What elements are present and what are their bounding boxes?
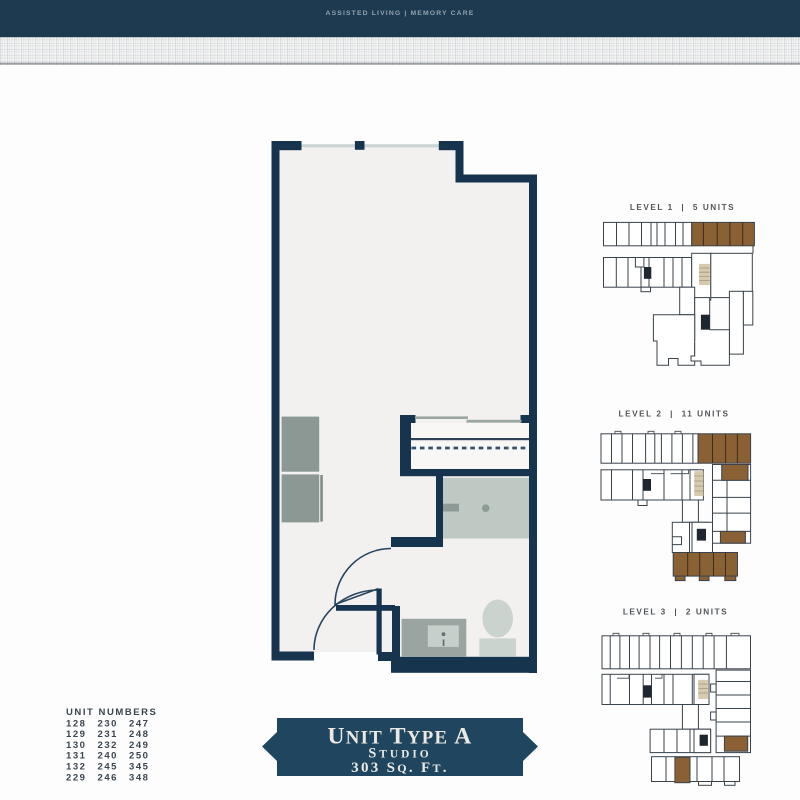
svg-text:230: 230 [98,718,119,729]
svg-text:229: 229 [66,772,87,783]
svg-text:132: 132 [66,762,87,773]
svg-text:ASSISTED LIVING | MEMORY CARE: ASSISTED LIVING | MEMORY CARE [326,10,475,17]
svg-text:130: 130 [66,740,87,751]
svg-text:303 SQ. FT.: 303 SQ. FT. [351,760,449,776]
svg-text:LEVEL 2 | 11 UNITS: LEVEL 2 | 11 UNITS [619,410,730,419]
svg-text:LEVEL 3 | 2 UNITS: LEVEL 3 | 2 UNITS [623,608,728,617]
svg-text:250: 250 [129,751,150,762]
svg-text:232: 232 [98,740,119,751]
svg-text:240: 240 [98,751,119,762]
svg-text:LEVEL 1 | 5 UNITS: LEVEL 1 | 5 UNITS [630,203,735,212]
svg-text:345: 345 [129,762,150,773]
svg-text:129: 129 [66,729,87,740]
svg-text:247: 247 [129,718,150,729]
svg-text:131: 131 [66,751,87,762]
svg-text:245: 245 [98,762,119,773]
svg-text:248: 248 [129,729,150,740]
svg-text:348: 348 [129,772,150,783]
svg-text:246: 246 [98,772,119,783]
svg-text:249: 249 [129,740,150,751]
svg-text:UNIT NUMBERS: UNIT NUMBERS [66,707,157,718]
svg-text:128: 128 [66,718,87,729]
svg-text:UNIT TYPE A: UNIT TYPE A [328,724,473,750]
svg-text:231: 231 [98,729,119,740]
